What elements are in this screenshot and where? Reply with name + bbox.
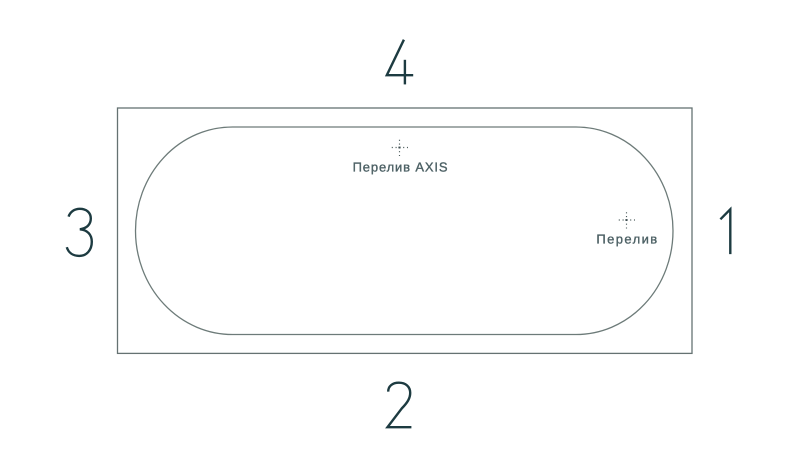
svg-text:Перелив: Перелив bbox=[596, 232, 658, 247]
svg-text:Перелив AXIS: Перелив AXIS bbox=[353, 160, 449, 175]
